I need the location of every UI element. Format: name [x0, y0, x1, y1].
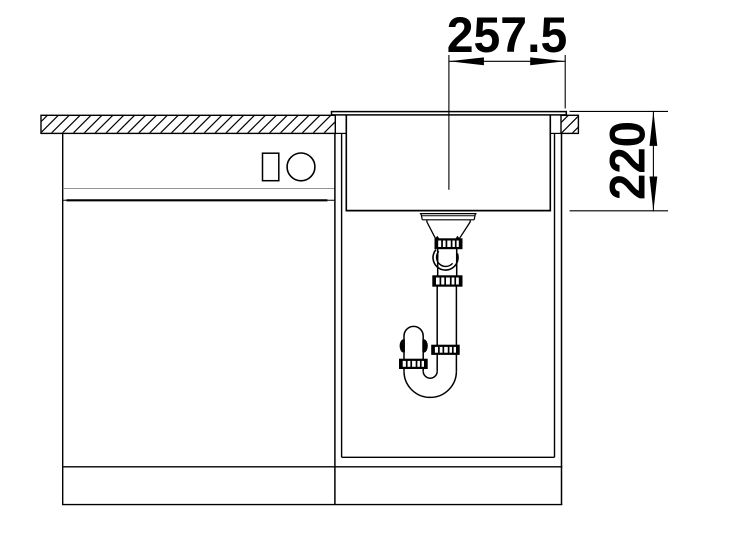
svg-text:257.5: 257.5	[447, 7, 568, 63]
svg-text:220: 220	[600, 121, 656, 200]
